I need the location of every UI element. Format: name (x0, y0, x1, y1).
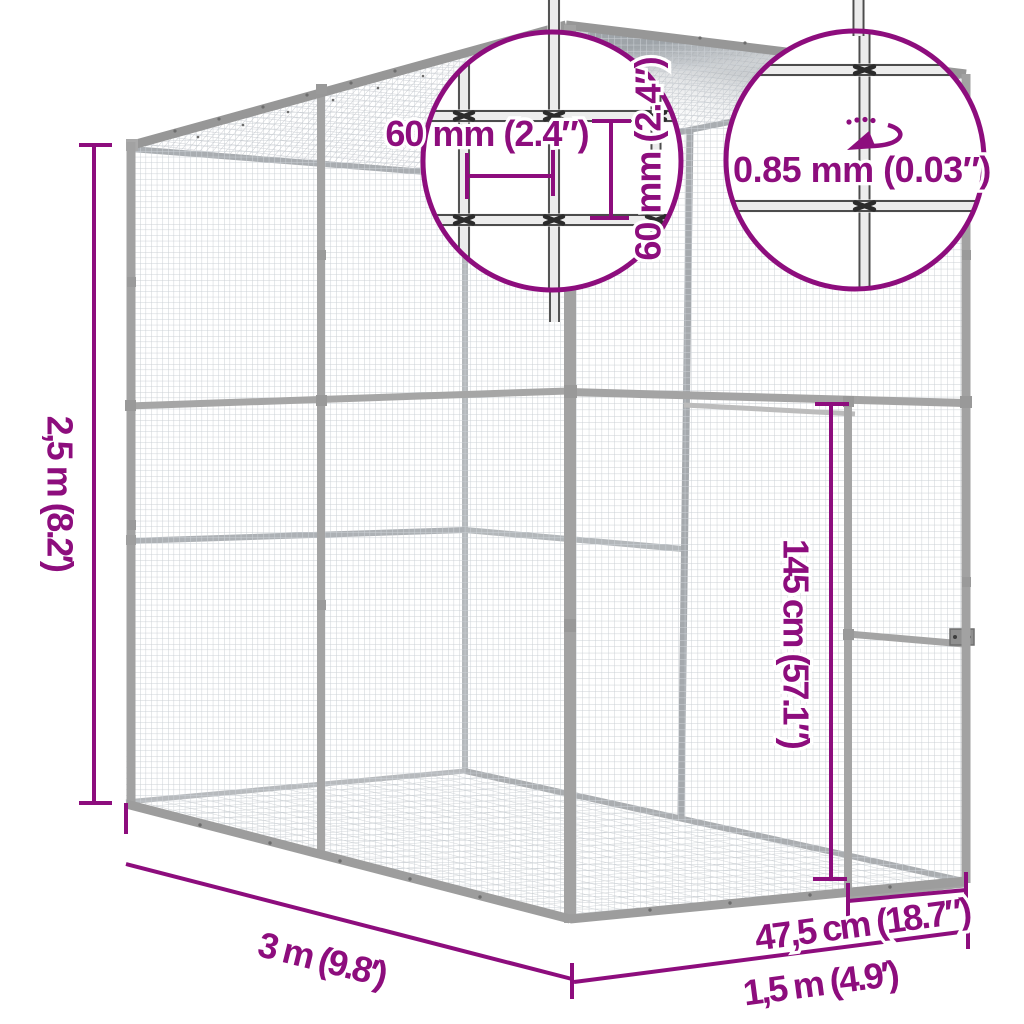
svg-text:145 cm (57.1″): 145 cm (57.1″) (776, 539, 817, 749)
svg-text:2,5 m (8.2′): 2,5 m (8.2′) (40, 416, 81, 572)
svg-text:0.85 mm (0.03″): 0.85 mm (0.03″) (733, 149, 991, 190)
svg-text:60 mm (2.4″): 60 mm (2.4″) (628, 57, 669, 260)
svg-text:60 mm (2.4″): 60 mm (2.4″) (385, 113, 588, 154)
